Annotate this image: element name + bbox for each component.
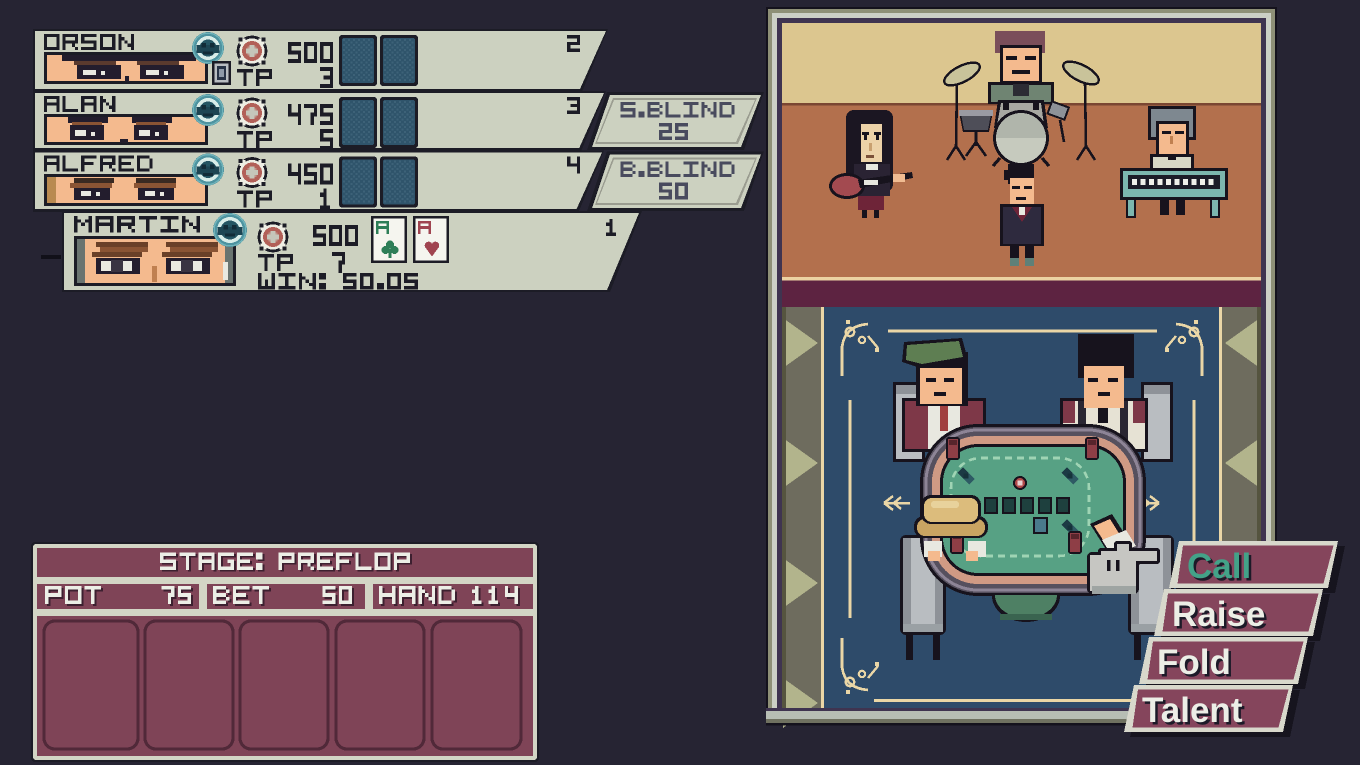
- svg-text:Raise: Raise: [1172, 595, 1265, 634]
- svg-text:Talent: Talent: [1142, 691, 1243, 730]
- svg-text:Fold: Fold: [1157, 643, 1231, 682]
- svg-text:Call: Call: [1187, 547, 1251, 586]
